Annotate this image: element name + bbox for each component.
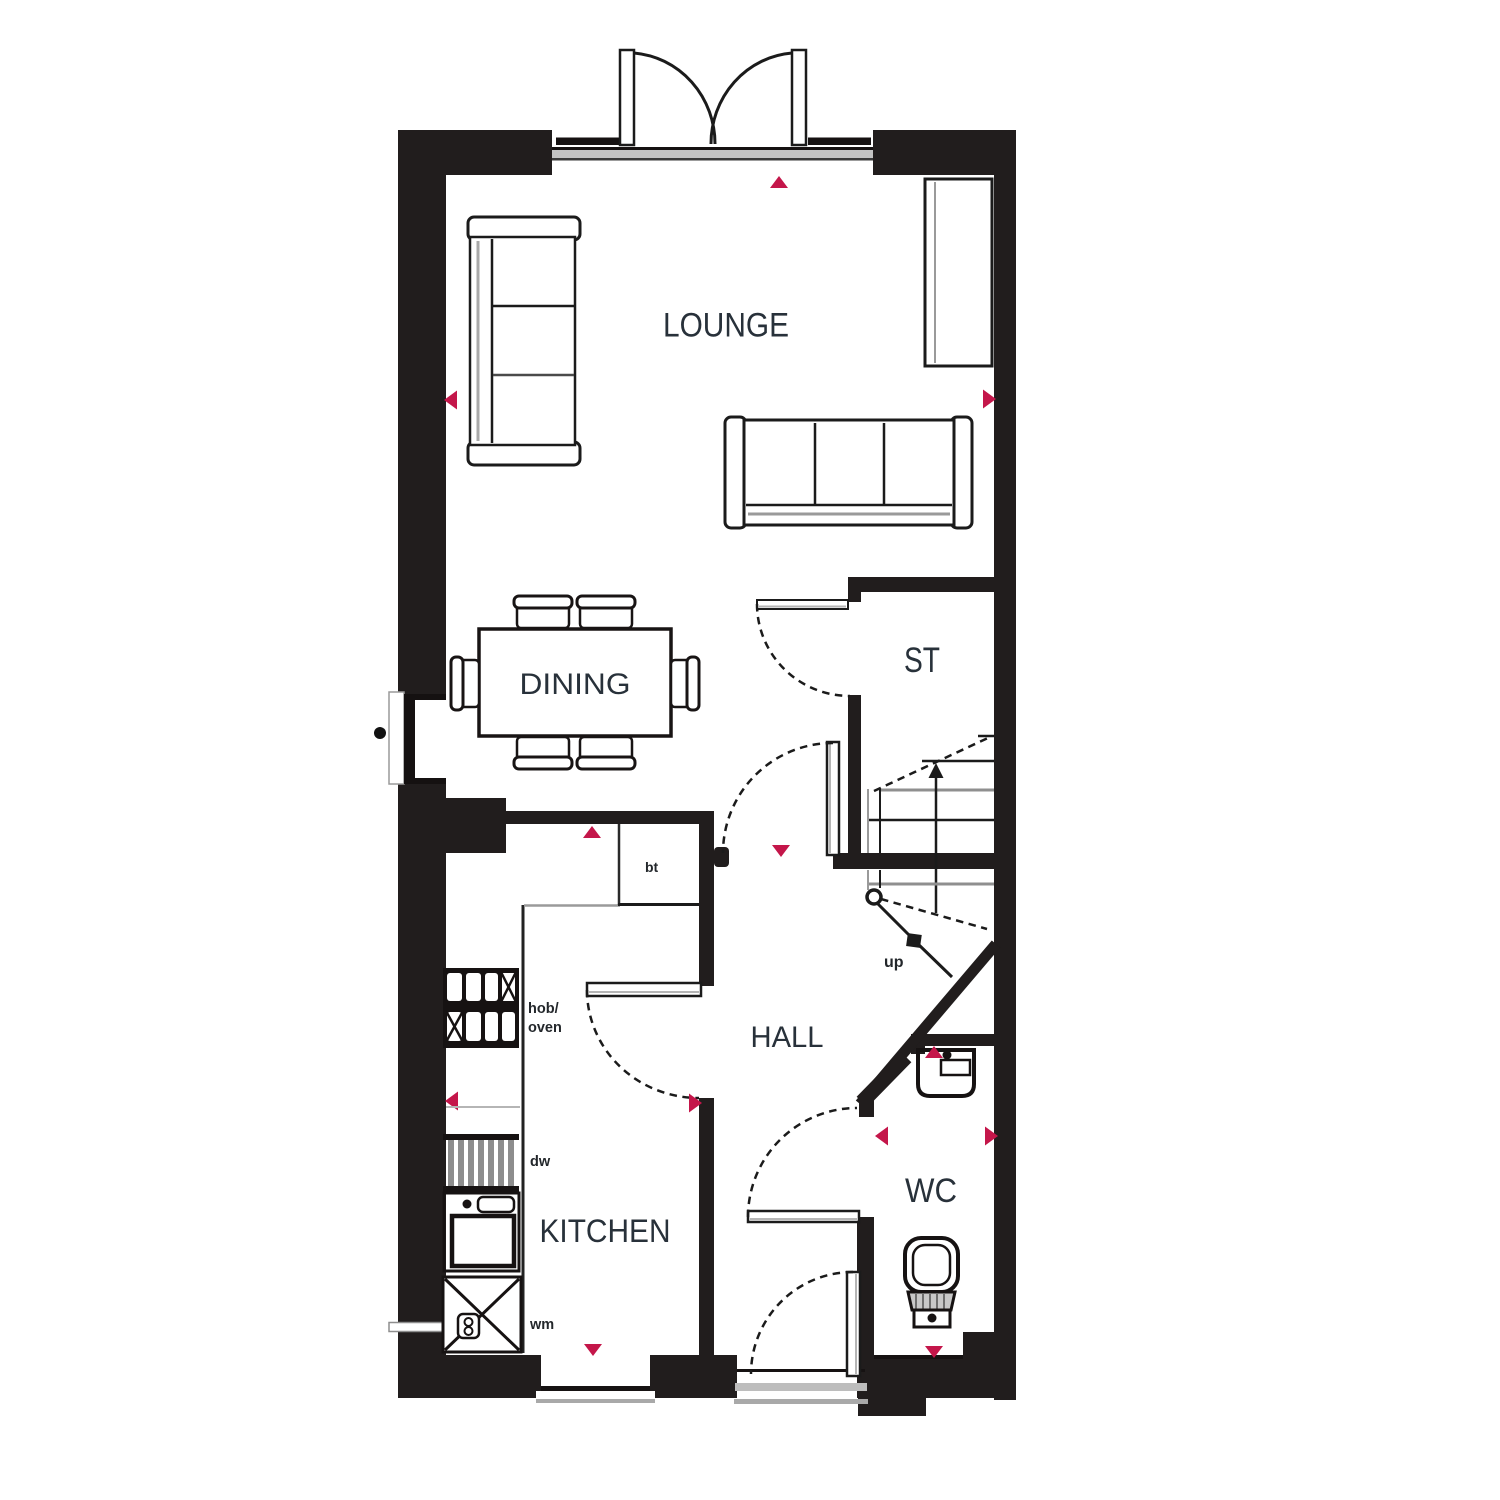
svg-text:hob/: hob/: [528, 1001, 559, 1017]
svg-text:up: up: [884, 954, 904, 971]
svg-text:WC: WC: [905, 1172, 957, 1210]
svg-text:bt: bt: [645, 859, 659, 875]
svg-text:LOUNGE: LOUNGE: [663, 307, 789, 345]
svg-text:oven: oven: [528, 1020, 562, 1036]
svg-text:KITCHEN: KITCHEN: [540, 1213, 671, 1249]
svg-text:dw: dw: [530, 1154, 551, 1170]
svg-text:DINING: DINING: [520, 668, 631, 701]
svg-text:ST: ST: [904, 641, 940, 680]
svg-text:HALL: HALL: [751, 1021, 824, 1054]
svg-text:wm: wm: [529, 1317, 554, 1333]
